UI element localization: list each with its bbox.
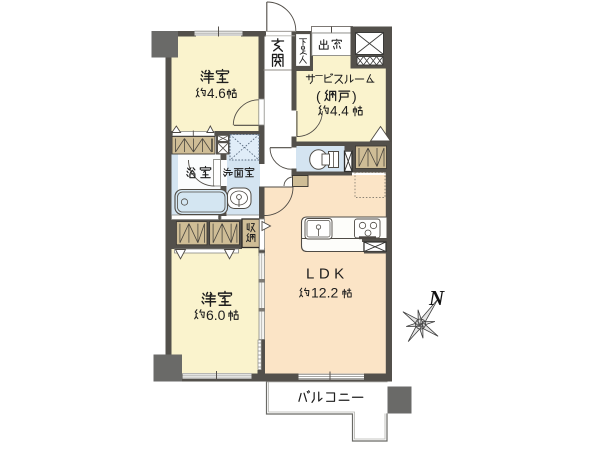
svg-text:12.2: 12.2 <box>311 285 338 301</box>
svg-text:4.4: 4.4 <box>330 104 349 119</box>
svg-text:4.6: 4.6 <box>207 86 226 101</box>
svg-text:N: N <box>428 286 445 310</box>
svg-text:6.0: 6.0 <box>206 307 226 323</box>
svg-text:LDK: LDK <box>306 266 349 283</box>
svg-text:): ) <box>352 88 357 104</box>
svg-text:(: ( <box>316 88 321 104</box>
